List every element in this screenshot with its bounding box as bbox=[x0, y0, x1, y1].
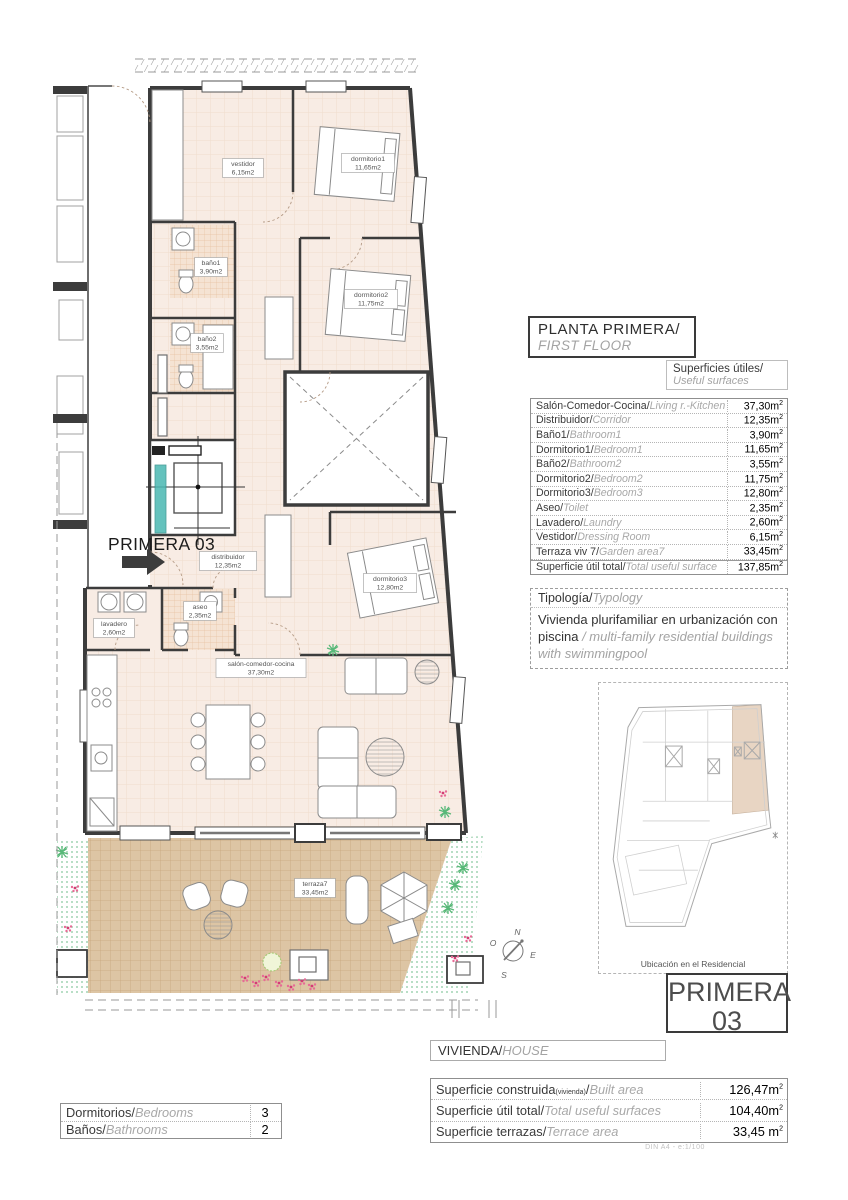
svg-text:2,35m2: 2,35m2 bbox=[189, 613, 212, 620]
typology-header: Tipología/Typology bbox=[531, 589, 787, 608]
room-label: dormitorio312,80m2 bbox=[363, 574, 416, 593]
room-label: salón-comedor-cocina37,30m2 bbox=[216, 659, 306, 678]
typology-box: Tipología/Typology Vivienda plurifamilia… bbox=[530, 588, 788, 669]
useful-surfaces-header-en: Useful surfaces bbox=[673, 375, 781, 387]
location-map-caption: Ubicación en el Residencial bbox=[599, 959, 787, 969]
svg-text:11,65m2: 11,65m2 bbox=[355, 165, 381, 172]
compass-icon: NSEO bbox=[490, 927, 536, 980]
location-map: Ubicación en el Residencial bbox=[598, 682, 788, 974]
counts-table-row: Dormitorios/Bedrooms3 bbox=[61, 1104, 281, 1122]
surfaces-table-row: Vestidor/Dressing Room6,15m2 bbox=[531, 530, 787, 545]
svg-text:vestidor: vestidor bbox=[231, 161, 256, 168]
svg-text:37,30m2: 37,30m2 bbox=[248, 670, 275, 677]
svg-text:baño2: baño2 bbox=[198, 336, 217, 343]
floor-plan-sheet: NSEO vestidor6,15m2dormitorio111,65m2bañ… bbox=[0, 0, 848, 1200]
room-label: lavadero2,60m2 bbox=[94, 619, 135, 638]
compass-letter-e: E bbox=[530, 950, 536, 960]
totals-table: Superficie construida(vivienda)/Built ar… bbox=[430, 1078, 788, 1143]
svg-text:distribuidor: distribuidor bbox=[211, 554, 245, 561]
totals-table-row: Superficie útil total/Total useful surfa… bbox=[431, 1100, 787, 1121]
surfaces-table-row: Dormitorio2/Bedroom211,75m2 bbox=[531, 472, 787, 487]
surfaces-table-row: Aseo/Toilet2,35m2 bbox=[531, 501, 787, 516]
vivienda-label: VIVIENDA/HOUSE bbox=[430, 1040, 666, 1061]
svg-text:salón-comedor-cocina: salón-comedor-cocina bbox=[228, 661, 295, 668]
totals-table-row: Superficie construida(vivienda)/Built ar… bbox=[431, 1079, 787, 1100]
surfaces-table-row: Superficie útil total/Total useful surfa… bbox=[531, 560, 787, 575]
svg-text:6,15m2: 6,15m2 bbox=[232, 170, 255, 177]
svg-text:3,55m2: 3,55m2 bbox=[196, 345, 219, 352]
floor-title-box: PLANTA PRIMERA/ FIRST FLOOR bbox=[528, 316, 696, 358]
svg-text:11,75m2: 11,75m2 bbox=[358, 301, 384, 308]
svg-text:12,35m2: 12,35m2 bbox=[215, 563, 242, 570]
svg-text:lavadero: lavadero bbox=[101, 621, 127, 628]
unit-pointer-label: PRIMERA 03 bbox=[108, 534, 215, 555]
svg-text:terraza7: terraza7 bbox=[303, 881, 328, 888]
room-label: dormitorio211,75m2 bbox=[344, 290, 397, 309]
svg-text:12,80m2: 12,80m2 bbox=[377, 585, 404, 592]
floor-title-es: PLANTA PRIMERA/ bbox=[538, 321, 686, 338]
surfaces-table-row: Lavadero/Laundry2,60m2 bbox=[531, 516, 787, 531]
unit-badge-line1: PRIMERA bbox=[668, 978, 786, 1007]
room-label: aseo2,35m2 bbox=[184, 602, 217, 621]
scale-note: DIN A4 - e:1/100 bbox=[555, 1144, 795, 1151]
floor-title-en: FIRST FLOOR bbox=[538, 338, 686, 353]
unit-badge-line2: 03 bbox=[668, 1007, 786, 1036]
useful-surfaces-table: Salón-Comedor-Cocina/Living r.-Kitchen37… bbox=[530, 398, 788, 575]
room-label: baño23,55m2 bbox=[191, 334, 224, 353]
svg-text:aseo: aseo bbox=[193, 604, 208, 611]
room-label: baño13,90m2 bbox=[195, 258, 228, 277]
lightwell-shaft bbox=[285, 372, 428, 505]
useful-surfaces-header-es: Superficies útiles/ bbox=[673, 363, 781, 375]
svg-text:dormitorio1: dormitorio1 bbox=[351, 156, 385, 163]
svg-text:dormitorio3: dormitorio3 bbox=[373, 576, 407, 583]
useful-surfaces-header: Superficies útiles/ Useful surfaces bbox=[666, 360, 788, 390]
svg-text:dormitorio2: dormitorio2 bbox=[354, 292, 388, 299]
surfaces-table-row: Dormitorio3/Bedroom312,80m2 bbox=[531, 487, 787, 502]
room-label: dormitorio111,65m2 bbox=[341, 154, 394, 173]
surfaces-table-row: Distribuidor/Corridor12,35m2 bbox=[531, 414, 787, 429]
counts-table-row: Baños/Bathrooms2 bbox=[61, 1122, 281, 1139]
unit-badge: PRIMERA 03 bbox=[666, 973, 788, 1033]
svg-text:2,60m2: 2,60m2 bbox=[103, 630, 126, 637]
compass-letter-n: N bbox=[514, 927, 521, 937]
compass-letter-o: O bbox=[490, 938, 497, 948]
surfaces-table-row: Terraza viv 7/Garden area733,45m2 bbox=[531, 545, 787, 560]
room-label: terraza733,45m2 bbox=[295, 879, 336, 898]
stair-elevator-core bbox=[146, 436, 245, 545]
room-label: vestidor6,15m2 bbox=[223, 159, 264, 178]
location-map-drawing bbox=[599, 683, 787, 951]
svg-text:33,45m2: 33,45m2 bbox=[302, 890, 329, 897]
surfaces-table-row: Baño1/Bathroom13,90m2 bbox=[531, 428, 787, 443]
compass-letter-s: S bbox=[501, 970, 507, 980]
surfaces-table-row: Salón-Comedor-Cocina/Living r.-Kitchen37… bbox=[531, 399, 787, 414]
surfaces-table-row: Baño2/Bathroom23,55m2 bbox=[531, 457, 787, 472]
svg-text:baño1: baño1 bbox=[202, 260, 221, 267]
totals-table-row: Superficie terrazas/Terrace area33,45 m2 bbox=[431, 1122, 787, 1142]
counts-table: Dormitorios/Bedrooms3Baños/Bathrooms2 bbox=[60, 1103, 282, 1139]
surfaces-table-row: Dormitorio1/Bedroom111,65m2 bbox=[531, 443, 787, 458]
typology-body: Vivienda plurifamiliar en urbanización c… bbox=[531, 608, 787, 668]
svg-text:3,90m2: 3,90m2 bbox=[200, 269, 223, 276]
